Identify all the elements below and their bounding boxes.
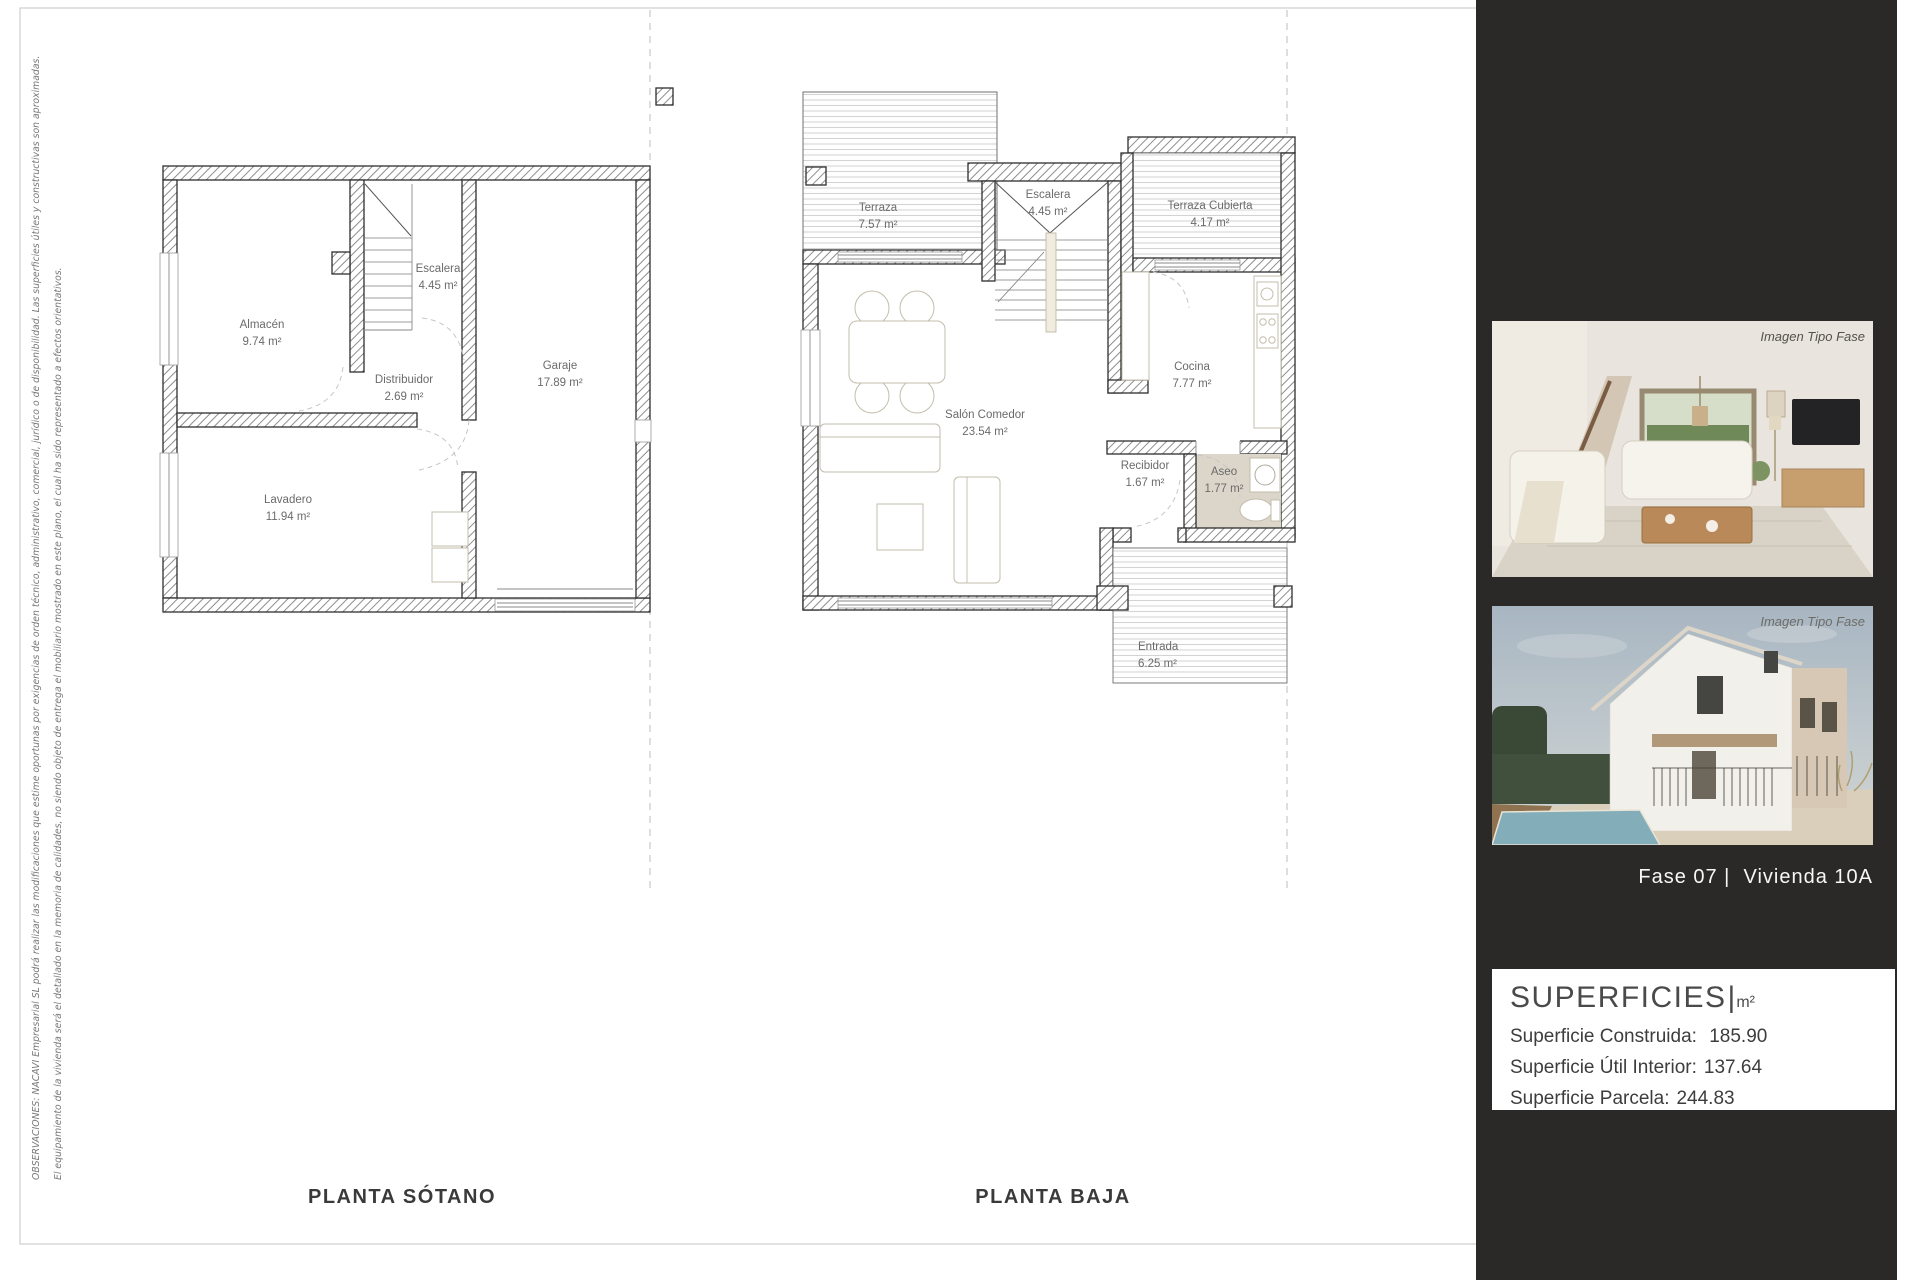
superficies-box: SUPERFICIES | m² Superficie Construida: … [1492, 969, 1895, 1110]
room-label-recibidor: Recibidor [1121, 460, 1170, 472]
room-label-distribuidor: Distribuidor [375, 374, 433, 386]
room-area-escalera-sotano: 4.45 m² [419, 280, 458, 292]
room-area-cocina: 7.77 m² [1173, 378, 1212, 390]
room-area-salon-comedor: 23.54 m² [962, 426, 1008, 438]
row-value: 244.83 [1676, 1088, 1734, 1109]
floor-plans-drawing: Almacén 9.74 m² Escalera 4.45 m² Distrib… [0, 0, 1476, 1280]
room-area-distribuidor: 2.69 m² [385, 391, 424, 403]
superficies-unit: m² [1736, 994, 1755, 1015]
room-area-aseo: 1.77 m² [1205, 483, 1244, 495]
row-label: Superficie Útil Interior: [1510, 1057, 1697, 1078]
sidebar-caption: Fase 07 | Vivienda 10A [1638, 866, 1873, 889]
room-label-almacen: Almacén [240, 319, 285, 331]
plan-title-sotano: PLANTA SÓTANO [308, 1186, 496, 1209]
room-area-recibidor: 1.67 m² [1126, 477, 1165, 489]
sidebar-image-living-room: Imagen Tipo Fase [1492, 321, 1873, 577]
room-area-terraza-cubierta: 4.17 m² [1191, 217, 1230, 229]
room-label-escalera-baja: Escalera [1026, 189, 1071, 201]
room-area-almacen: 9.74 m² [243, 336, 282, 348]
room-area-lavadero: 11.94 m² [266, 511, 311, 523]
sotano-stairs [364, 184, 412, 330]
sidebar-panel: Imagen Tipo Fase [1476, 0, 1897, 1280]
superficies-pipe: | [1728, 981, 1736, 1015]
row-label: Superficie Parcela: [1510, 1088, 1669, 1109]
superficies-row-util-interior: Superficie Útil Interior:137.64 [1510, 1052, 1895, 1083]
row-value: 185.90 [1704, 1026, 1767, 1047]
baja-stairs [995, 182, 1108, 332]
house-exterior-illustration [1492, 606, 1873, 845]
room-label-aseo: Aseo [1211, 466, 1237, 478]
room-area-escalera-baja: 4.45 m² [1029, 206, 1068, 218]
sotano-plan: Almacén 9.74 m² Escalera 4.45 m² Distrib… [160, 166, 651, 612]
room-label-salon-comedor: Salón Comedor [945, 409, 1025, 421]
room-label-lavadero: Lavadero [264, 494, 312, 506]
room-area-entrada: 6.25 m² [1138, 658, 1177, 670]
plan-sheet: OBSERVACIONES: NACAVI Empresarial SL pod… [0, 0, 1920, 1280]
sidebar-image-house-exterior: Imagen Tipo Fase [1492, 606, 1873, 845]
superficies-row-construida: Superficie Construida: 185.90 [1510, 1021, 1895, 1052]
room-label-entrada: Entrada [1138, 641, 1179, 653]
superficies-title: SUPERFICIES [1510, 981, 1727, 1015]
living-room-illustration [1492, 321, 1873, 577]
superficies-row-parcela: Superficie Parcela:244.83 [1510, 1083, 1895, 1114]
row-value: 137.64 [1704, 1057, 1762, 1078]
room-label-garaje: Garaje [543, 360, 578, 372]
room-label-terraza-cubierta: Terraza Cubierta [1167, 200, 1253, 212]
room-label-escalera-sotano: Escalera [416, 263, 461, 275]
image-label-tipo-fase-2: Imagen Tipo Fase [1760, 614, 1865, 629]
room-label-terraza: Terraza [859, 202, 898, 214]
image-label-tipo-fase-1: Imagen Tipo Fase [1760, 329, 1865, 344]
room-area-garaje: 17.89 m² [537, 377, 583, 389]
room-area-terraza: 7.57 m² [859, 219, 898, 231]
baja-plan: Terraza 7.57 m² Escalera 4.45 m² Terraza… [656, 88, 1295, 683]
room-label-cocina: Cocina [1174, 361, 1210, 373]
row-label: Superficie Construida: [1510, 1026, 1697, 1047]
plan-title-baja: PLANTA BAJA [975, 1186, 1130, 1209]
